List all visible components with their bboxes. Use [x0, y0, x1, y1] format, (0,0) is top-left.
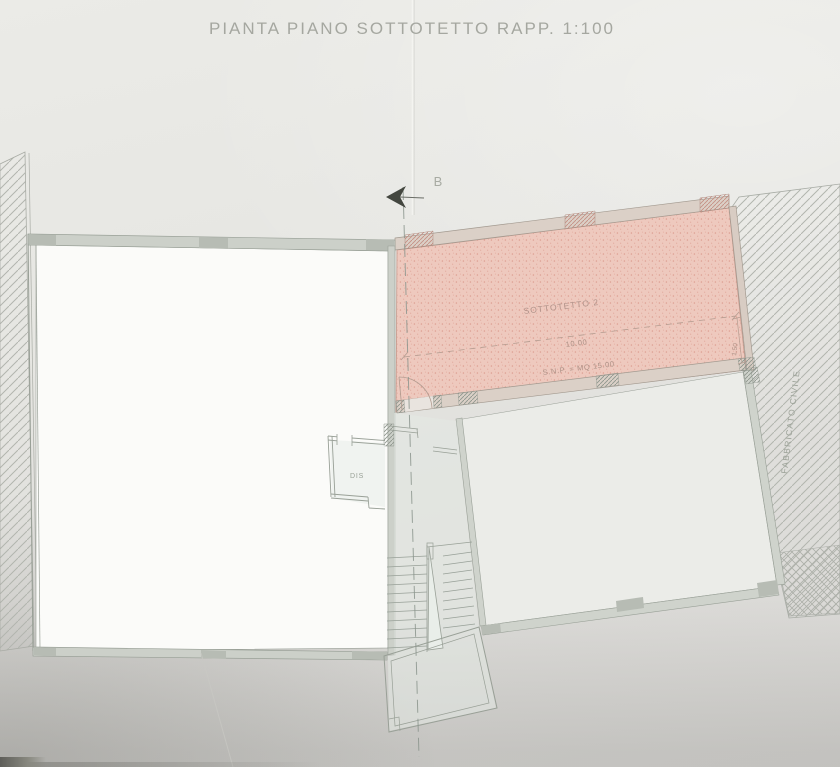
- page-title: PIANTA PIANO SOTTOTETTO RAPP. 1:100: [209, 19, 615, 38]
- wall-pillar: [29, 234, 56, 246]
- wall-pillar: [34, 647, 56, 656]
- crosshatch-block: [776, 545, 840, 616]
- wall-pillar: [352, 651, 387, 660]
- room-right: [456, 367, 785, 635]
- wall-pillar: [757, 580, 779, 597]
- wall-pillar: [458, 391, 478, 405]
- wall-pillar: [199, 237, 228, 249]
- paper-crease-line: [201, 653, 233, 767]
- door-jamb: [433, 395, 442, 408]
- right-room-floor: [457, 372, 777, 626]
- room-dis: DIS: [328, 434, 385, 509]
- section-label: B: [434, 174, 443, 189]
- dis-label: DIS: [350, 473, 364, 480]
- wall-pillar: [384, 424, 394, 446]
- floor-plan-drawing: PIANTA PIANO SOTTOTETTO RAPP. 1:100 FABB…: [0, 0, 840, 767]
- scanned-floor-plan-photo: PIANTA PIANO SOTTOTETTO RAPP. 1:100 FABB…: [0, 0, 840, 767]
- left-neighbor-hatch: [0, 152, 37, 651]
- wall-pillar: [743, 367, 760, 384]
- wall-pillar: [201, 650, 226, 659]
- door-jamb: [396, 400, 405, 413]
